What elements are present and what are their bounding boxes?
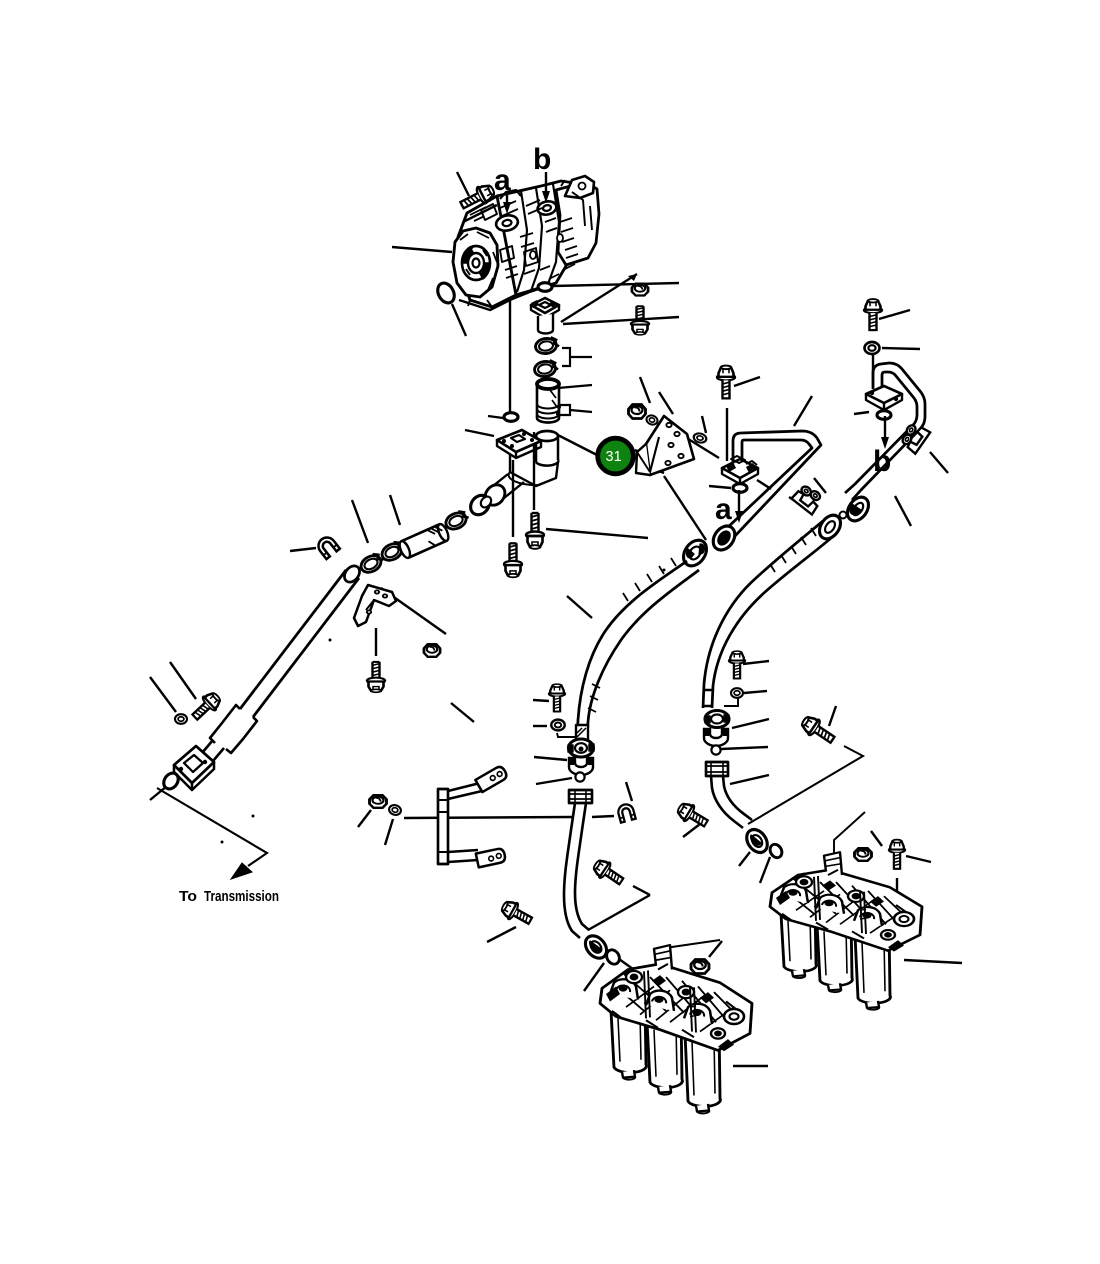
- svg-text:a: a: [494, 164, 511, 197]
- svg-text:31: 31: [606, 449, 622, 465]
- svg-text:Transmission: Transmission: [204, 888, 279, 905]
- svg-text:a: a: [715, 493, 732, 526]
- svg-text:To: To: [179, 888, 197, 905]
- svg-text:b: b: [873, 445, 891, 478]
- svg-text:b: b: [533, 143, 551, 176]
